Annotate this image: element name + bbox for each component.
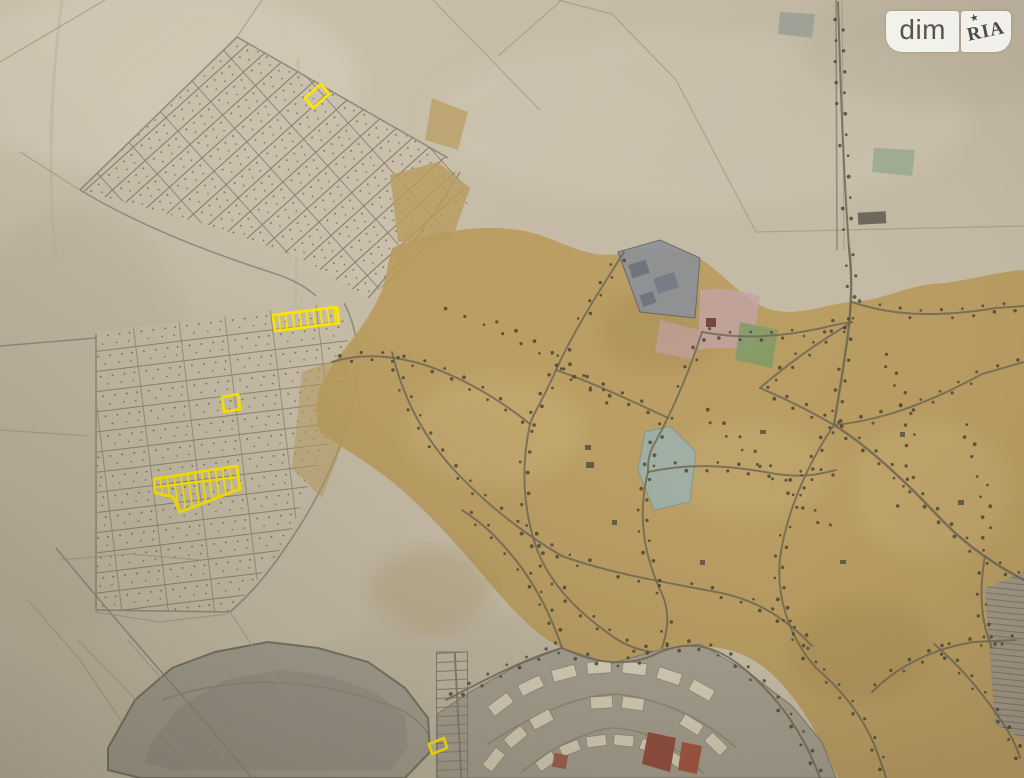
watermark-ria-label: ★ RIA — [961, 11, 1011, 52]
photo-vignette — [0, 0, 1024, 778]
watermark-badge: dim ★ RIA — [886, 11, 1011, 52]
watermark-dim-label: dim — [886, 11, 959, 52]
map-image — [0, 0, 1024, 778]
listing-photo: dim ★ RIA — [0, 0, 1024, 778]
